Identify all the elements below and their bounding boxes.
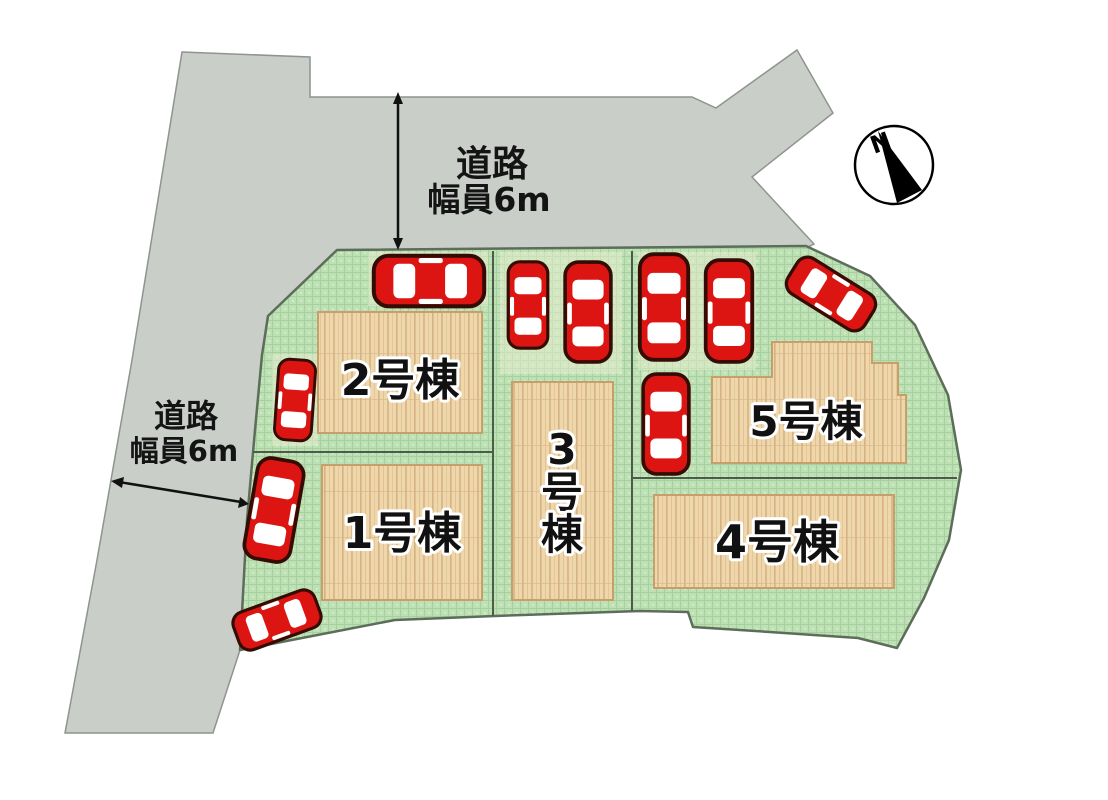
car-5 — [706, 260, 753, 362]
car-2 — [508, 262, 548, 348]
building-1-label: 1号棟 — [343, 508, 463, 559]
building-3-label-char: 3 — [547, 425, 576, 474]
road-width-label-left-line1: 道路 — [154, 397, 219, 435]
compass-icon: N — [855, 126, 933, 204]
building-5-label: 5号棟 — [749, 397, 863, 446]
road-width-label-top-line1: 道路 — [456, 144, 529, 185]
site-plan-svg: 2号棟 1号棟 4号棟 5号棟 3 号 棟 道路 幅員6m 道路 幅員6m N — [0, 0, 1108, 800]
car-8 — [274, 358, 316, 441]
road-width-label-top-line2: 幅員6m — [427, 180, 550, 219]
building-3-label-char: 棟 — [541, 510, 584, 559]
building-4-label: 4号棟 — [715, 515, 840, 569]
road-width-label-left-line2: 幅員6m — [130, 434, 238, 468]
car-1 — [374, 256, 484, 307]
building-2-label: 2号棟 — [341, 355, 461, 406]
car-3 — [565, 262, 611, 362]
car-4 — [640, 254, 688, 360]
car-7 — [643, 374, 689, 474]
site-plan-page: 2号棟 1号棟 4号棟 5号棟 3 号 棟 道路 幅員6m 道路 幅員6m N — [0, 0, 1108, 800]
